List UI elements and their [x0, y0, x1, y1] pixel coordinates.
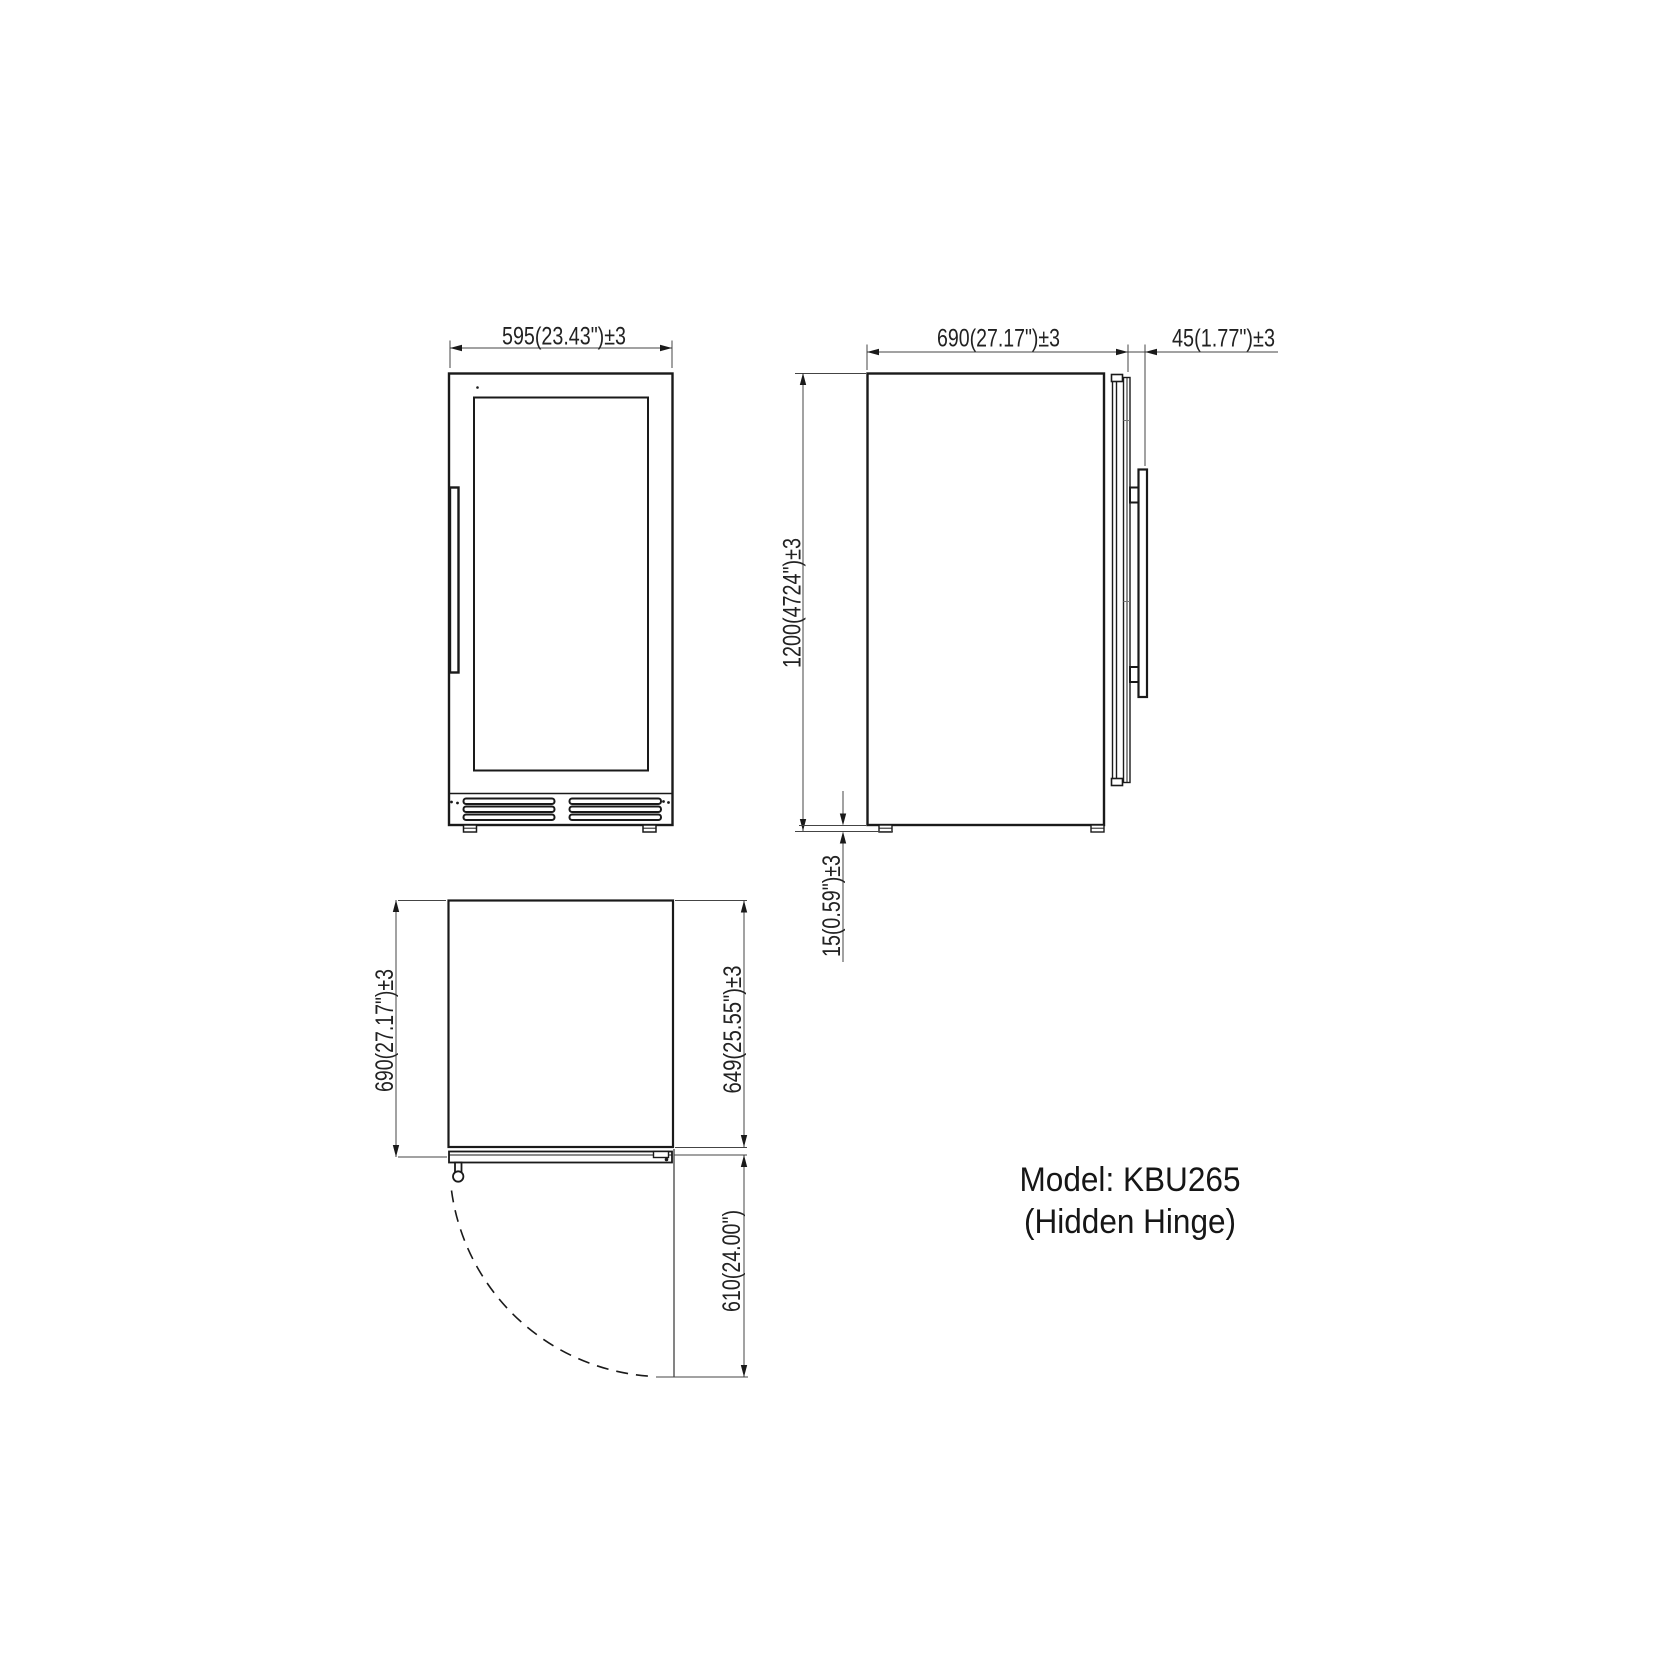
model-label: Model: KBU265 (Hidden Hinge): [1020, 1161, 1241, 1241]
top-door-handle: [453, 1163, 463, 1182]
side-handle-depth-label: 45(1.77")±3: [1172, 325, 1275, 353]
door-swing-label: 610(24.00"): [718, 1210, 746, 1312]
front-view: 595(23.43")±3: [449, 323, 673, 833]
side-height-label: 1200(4724")±3: [779, 538, 807, 668]
top-door: [449, 1152, 672, 1163]
front-door-handle: [450, 488, 459, 673]
side-door: [1112, 375, 1131, 786]
side-door-handle: [1130, 470, 1147, 698]
front-width-label: 595(23.43")±3: [502, 323, 626, 351]
top-depth-dimension: 690(27.17")±3: [371, 900, 447, 1157]
technical-drawing-page: 595(23.43")±3: [0, 0, 1676, 1676]
side-depth-label: 690(27.17")±3: [937, 325, 1060, 353]
side-view: 690(27.17")±3 45(1.77")±3 1200(4724")±3 …: [779, 325, 1279, 963]
top-body-depth-dimension: 649(25.55")±3: [675, 901, 747, 1148]
top-view: 690(27.17")±3 649(25.55")±3 610(24.00"): [371, 900, 748, 1377]
model-hinge-text: (Hidden Hinge): [1024, 1203, 1236, 1241]
top-depth-label: 690(27.17")±3: [371, 969, 399, 1092]
door-swing-dimension: 610(24.00"): [656, 1155, 748, 1377]
door-swing-arc: [452, 1191, 656, 1377]
top-hinge: [654, 1152, 669, 1158]
dimension-drawing: 595(23.43")±3: [0, 0, 1676, 1676]
front-door-mark: [476, 386, 479, 389]
model-name-text: Model: KBU265: [1020, 1161, 1241, 1199]
top-cabinet-body: [449, 901, 674, 1148]
top-hinge-pivot: [665, 1158, 669, 1162]
top-body-depth-label: 649(25.55")±3: [719, 966, 747, 1094]
front-cabinet-body: [449, 374, 673, 826]
side-foot-height-label: 15(0.59")±3: [818, 855, 846, 957]
side-height-dimension: 1200(4724")±3: [779, 373, 867, 831]
side-cabinet-body: [868, 374, 1105, 826]
front-width-dimension: 595(23.43")±3: [450, 323, 672, 369]
